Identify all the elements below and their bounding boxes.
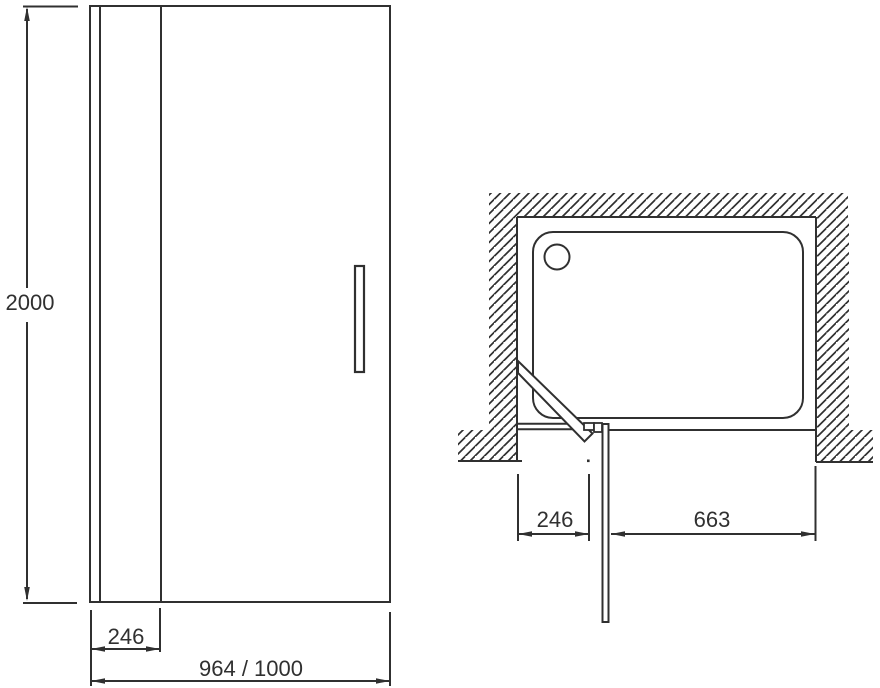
- dimension-height: 2000: [6, 7, 78, 604]
- technical-drawing-page: 2000 246 964 / 1000: [0, 0, 880, 688]
- drain-circle: [545, 245, 570, 270]
- side-panel-glass: [603, 424, 609, 622]
- closure-profile-small: [584, 423, 594, 430]
- arrow-up-icon: [24, 7, 30, 21]
- pivot-axis-dot: [587, 460, 590, 463]
- wall-hatch-top: [489, 193, 848, 217]
- arrow-right-icon: [575, 531, 589, 536]
- dimension-plan-opening: 663: [611, 466, 816, 541]
- dimension-label-plan-fixed-panel: 246: [537, 507, 574, 532]
- arrow-left-icon: [91, 646, 105, 651]
- shower-tray-outline: [533, 232, 803, 418]
- dimension-label-fixed-panel: 246: [108, 624, 145, 649]
- arrow-right-icon: [801, 531, 815, 536]
- plan-view: 246 663: [458, 193, 873, 622]
- dimension-label-overall-width: 964 / 1000: [199, 656, 303, 681]
- arrow-left-icon: [518, 531, 532, 536]
- arrow-left-icon: [91, 678, 105, 683]
- wall-hatch-right-footing: [816, 430, 873, 461]
- front-elevation-view: 2000 246 964 / 1000: [6, 6, 390, 686]
- technical-drawing-canvas: 2000 246 964 / 1000: [0, 0, 880, 688]
- wall-hatch-left: [489, 217, 517, 430]
- wall-hatch-left-footing: [458, 430, 517, 461]
- door-handle: [355, 266, 364, 372]
- dimension-label-height: 2000: [6, 290, 55, 315]
- closure-profile-large: [594, 423, 602, 432]
- arrow-right-icon: [146, 646, 160, 651]
- door-panel-outline: [90, 6, 390, 602]
- arrow-right-icon: [376, 678, 390, 683]
- arrow-down-icon: [24, 587, 30, 601]
- dimension-label-plan-opening: 663: [694, 507, 731, 532]
- dimension-plan-fixed-panel: 246: [518, 474, 589, 541]
- dimension-fixed-panel-width: 246: [91, 608, 160, 686]
- arrow-left-icon: [611, 531, 625, 536]
- wall-hatch-right: [816, 217, 849, 430]
